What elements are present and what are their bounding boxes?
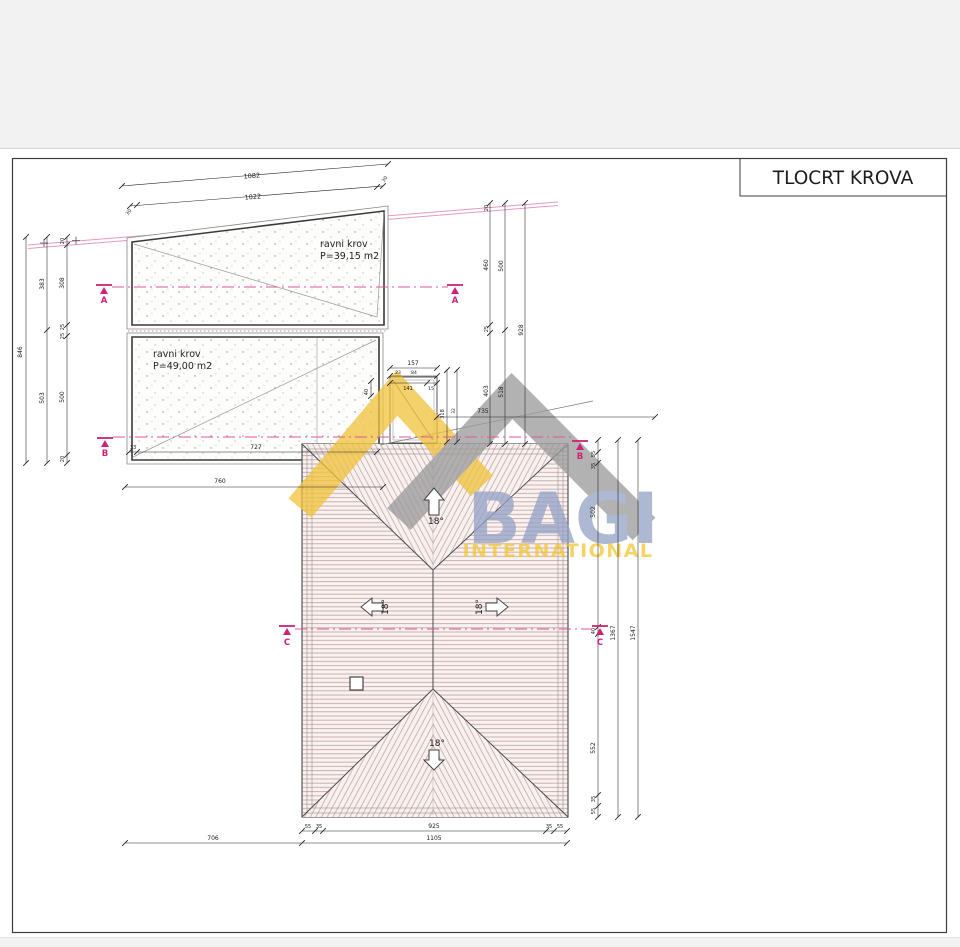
svg-text:A: A — [101, 296, 108, 306]
svg-text:B: B — [102, 449, 108, 459]
dim-label: 30 — [125, 208, 134, 217]
svg-text:B: B — [577, 452, 583, 462]
dim-label: 55 — [591, 451, 597, 457]
dim-label: 25 — [60, 333, 66, 339]
dim-label: 502 — [590, 506, 597, 518]
slope-angle-right: 18° — [475, 599, 485, 615]
dim-label: 55 — [591, 808, 597, 814]
dim-label: 403 — [483, 385, 490, 397]
dim-label: 25 — [484, 326, 490, 332]
dim-label: 735 — [477, 408, 489, 415]
dim-label: 55 — [557, 824, 563, 830]
section-marker-c-left: C — [279, 626, 295, 648]
dim-label: 1082 — [243, 171, 260, 180]
title-block: TLOCRT KROVA — [740, 159, 947, 197]
dim-label: 727 — [250, 444, 262, 451]
svg-text:C: C — [284, 638, 290, 648]
dim-label: 1367 — [610, 625, 617, 640]
slope-angle-top: 18° — [428, 517, 444, 527]
section-marker-b-left: B — [97, 438, 113, 459]
dim-label: 706 — [207, 835, 219, 842]
roof-upper-name: ravni krov — [320, 239, 368, 250]
dim-label: 20 — [60, 238, 66, 244]
dim-label: 35 — [591, 796, 597, 802]
roof-upper-area: P=39,15 m2 — [320, 251, 379, 262]
dim-label: 32 — [451, 408, 457, 414]
dim-label: 383 — [39, 278, 46, 290]
dim-label: 500 — [59, 391, 66, 403]
svg-text:A: A — [452, 296, 459, 306]
roof-lower-name: ravni krov — [153, 349, 201, 360]
dim-label: 35 — [591, 463, 597, 469]
dim-label: 460 — [483, 259, 490, 271]
dim-label: 928 — [518, 324, 525, 336]
section-marker-a-left: A — [96, 285, 112, 306]
roof-detail-square — [350, 677, 363, 690]
dim-label: 308 — [59, 277, 66, 289]
dim-label: 1022 — [244, 192, 261, 201]
dim-label: 157 — [407, 360, 419, 367]
dim-label: 500 — [498, 260, 505, 272]
page-title: TLOCRT KROVA — [772, 168, 914, 189]
dim-label: 40 — [364, 389, 370, 395]
dim-label: 760 — [214, 478, 226, 485]
dim-label: 20 — [484, 205, 490, 211]
dim-label: 35 — [546, 824, 552, 830]
dim-label: 23 — [395, 370, 401, 376]
dim-label: 1547 — [630, 625, 637, 640]
flat-roof-upper — [127, 206, 388, 329]
dim-label: 925 — [428, 823, 440, 830]
roof-lower-area: P=49,00 m2 — [153, 361, 212, 372]
svg-text:C: C — [597, 638, 603, 648]
dim-label: 552 — [590, 742, 597, 754]
dim-label: 141 — [403, 386, 413, 392]
dim-label: 25 — [60, 324, 66, 330]
dim-label: 518 — [498, 386, 505, 398]
section-marker-a-right: A — [447, 285, 463, 306]
dim-label: 15 — [428, 386, 434, 392]
dim-label: 846 — [17, 346, 24, 358]
dim-tick — [374, 184, 380, 190]
dim-label: 503 — [39, 392, 46, 404]
dim-label: 20 — [60, 456, 66, 462]
dim-tick — [134, 202, 140, 208]
dim-label: 33 — [130, 445, 136, 451]
slope-angle-bottom: 18° — [429, 739, 445, 749]
dim-label: 35 — [316, 824, 322, 830]
dim-label: 1105 — [426, 835, 441, 842]
dim-label: 318 — [440, 409, 446, 419]
dim-label: 30 — [381, 175, 390, 184]
watermark-subtitle-text: INTERNATIONAL — [462, 540, 653, 562]
dim-label: 84 — [411, 370, 417, 376]
roof-plan-drawing: TLOCRT KROVA — [0, 0, 960, 947]
dim-label: 55 — [305, 824, 311, 830]
slope-angle-left: 18° — [381, 599, 391, 615]
